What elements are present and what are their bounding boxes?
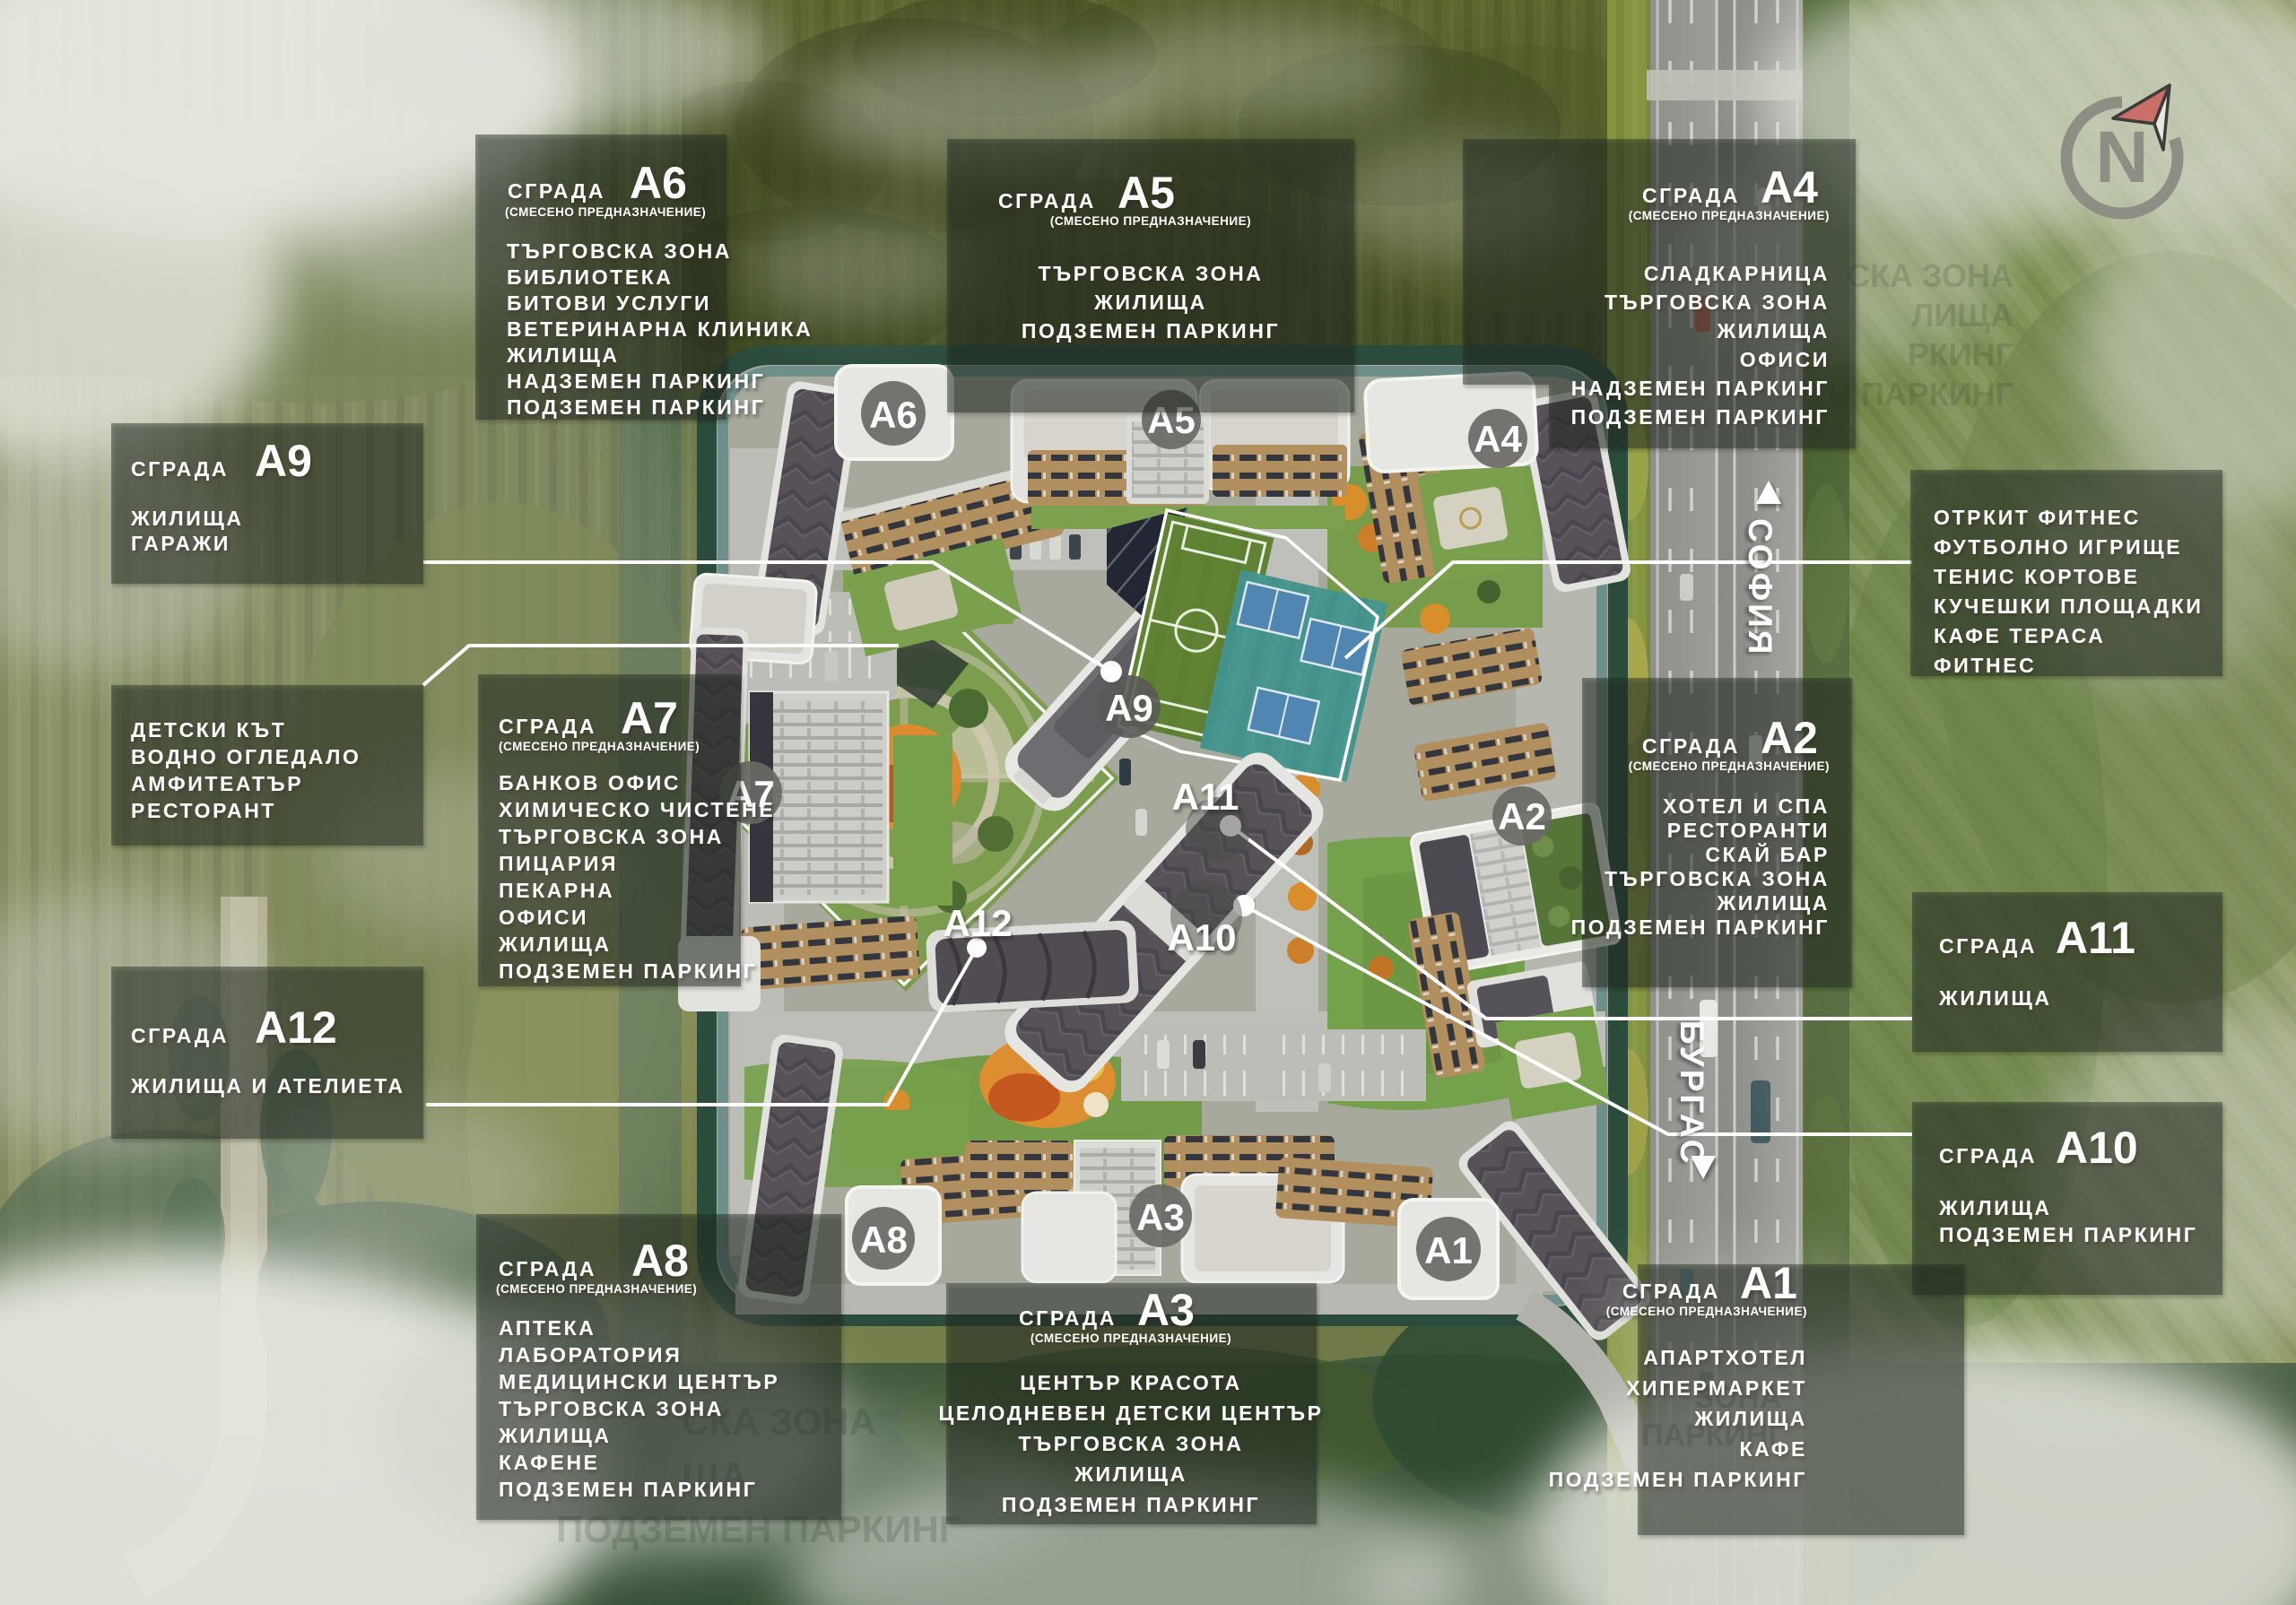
svg-text:СГРАДА: СГРАДА <box>1939 934 2037 958</box>
svg-text:ПОДЗЕМЕН ПАРКИНГ: ПОДЗЕМЕН ПАРКИНГ <box>1571 915 1830 939</box>
svg-text:(СМЕСЕНО ПРЕДНАЗНАЧЕНИЕ): (СМЕСЕНО ПРЕДНАЗНАЧЕНИЕ) <box>505 205 706 219</box>
svg-text:КАФЕНЕ: КАФЕНЕ <box>499 1451 600 1474</box>
svg-text:МЕДИЦИНСКИ ЦЕНТЪР: МЕДИЦИНСКИ ЦЕНТЪР <box>499 1370 779 1393</box>
svg-text:РКИНГ: РКИНГ <box>1908 336 2013 373</box>
svg-text:АМФИТЕАТЪР: АМФИТЕАТЪР <box>131 772 303 795</box>
svg-text:А8: А8 <box>859 1219 908 1261</box>
svg-text:СГРАДА: СГРАДА <box>998 189 1096 213</box>
svg-text:ОФИСИ: ОФИСИ <box>499 906 588 929</box>
svg-text:НАДЗЕМЕН ПАРКИНГ: НАДЗЕМЕН ПАРКИНГ <box>507 369 765 393</box>
svg-text:Н ПАРКИНГ: Н ПАРКИНГ <box>1829 376 2013 412</box>
svg-text:ПОДЗЕМЕН ПАРКИНГ: ПОДЗЕМЕН ПАРКИНГ <box>507 395 765 419</box>
svg-text:СКАЙ БАР: СКАЙ БАР <box>1705 842 1830 866</box>
svg-text:ЖИЛИЩА: ЖИЛИЩА <box>1074 1462 1187 1486</box>
svg-text:АПТЕКА: АПТЕКА <box>499 1316 596 1340</box>
svg-text:ТЪРГОВСКА ЗОНА: ТЪРГОВСКА ЗОНА <box>1018 1432 1243 1455</box>
svg-text:НАДЗЕМЕН ПАРКИНГ: НАДЗЕМЕН ПАРКИНГ <box>1571 377 1830 400</box>
svg-text:(СМЕСЕНО ПРЕДНАЗНАЧЕНИЕ): (СМЕСЕНО ПРЕДНАЗНАЧЕНИЕ) <box>1629 209 1830 222</box>
svg-text:N: N <box>2095 117 2148 198</box>
svg-text:ПОДЗЕМЕН ПАРКИНГ: ПОДЗЕМЕН ПАРКИНГ <box>499 1478 757 1501</box>
svg-text:ЛИЩА: ЛИЩА <box>1911 297 2013 334</box>
svg-text:СОФИЯ: СОФИЯ <box>1742 518 1779 656</box>
svg-text:ЖИЛИЩА: ЖИЛИЩА <box>1938 986 2052 1010</box>
svg-text:А5: А5 <box>1118 168 1175 218</box>
svg-text:ЖИЛИЩА: ЖИЛИЩА <box>1693 1407 1807 1430</box>
svg-text:А4: А4 <box>1761 162 1818 213</box>
svg-text:А9: А9 <box>255 436 312 486</box>
svg-text:А9: А9 <box>1105 687 1153 729</box>
svg-text:ПОДЗЕМЕН ПАРКИНГ: ПОДЗЕМЕН ПАРКИНГ <box>1002 1493 1260 1516</box>
svg-text:ТЪРГОВСКА ЗОНА: ТЪРГОВСКА ЗОНА <box>499 825 724 848</box>
svg-text:ТЪРГОВСКА ЗОНА: ТЪРГОВСКА ЗОНА <box>499 1397 724 1420</box>
svg-text:ТЪРГОВСКА ЗОНА: ТЪРГОВСКА ЗОНА <box>1605 291 1830 314</box>
svg-text:(СМЕСЕНО ПРЕДНАЗНАЧЕНИЕ): (СМЕСЕНО ПРЕДНАЗНАЧЕНИЕ) <box>1031 1332 1231 1345</box>
svg-text:ЖИЛИЩА И АТЕЛИЕТА: ЖИЛИЩА И АТЕЛИЕТА <box>130 1074 405 1097</box>
svg-text:А8: А8 <box>631 1236 689 1286</box>
svg-text:БИБЛИОТЕКА: БИБЛИОТЕКА <box>507 265 674 289</box>
svg-text:(СМЕСЕНО ПРЕДНАЗНАЧЕНИЕ): (СМЕСЕНО ПРЕДНАЗНАЧЕНИЕ) <box>499 740 700 753</box>
svg-text:А10: А10 <box>2056 1123 2138 1173</box>
svg-text:КАФЕ ТЕРАСА: КАФЕ ТЕРАСА <box>1934 624 2105 647</box>
svg-text:ЖИЛИЩА: ЖИЛИЩА <box>1938 1196 2052 1219</box>
svg-text:(СМЕСЕНО ПРЕДНАЗНАЧЕНИЕ): (СМЕСЕНО ПРЕДНАЗНАЧЕНИЕ) <box>496 1282 697 1296</box>
svg-text:ГАРАЖИ: ГАРАЖИ <box>131 532 230 555</box>
svg-text:СГРАДА: СГРАДА <box>1622 1280 1720 1303</box>
svg-text:СЛАДКАРНИЦА: СЛАДКАРНИЦА <box>1644 262 1830 285</box>
svg-text:А2: А2 <box>1761 713 1818 763</box>
svg-text:ФИТНЕС: ФИТНЕС <box>1934 654 2036 677</box>
svg-text:ЖИЛИЩА: ЖИЛИЩА <box>1716 319 1830 343</box>
svg-text:ПОДЗЕМЕН ПАРКИНГ: ПОДЗЕМЕН ПАРКИНГ <box>499 959 757 983</box>
svg-text:А6: А6 <box>630 158 687 208</box>
svg-text:(СМЕСЕНО ПРЕДНАЗНАЧЕНИЕ): (СМЕСЕНО ПРЕДНАЗНАЧЕНИЕ) <box>1629 759 1830 773</box>
svg-text:РЕСТОРАНТ: РЕСТОРАНТ <box>131 799 276 822</box>
svg-text:ТЪРГОВСКА ЗОНА: ТЪРГОВСКА ЗОНА <box>1038 262 1263 285</box>
svg-text:СГРАДА: СГРАДА <box>499 1257 596 1280</box>
svg-text:ПИЦАРИЯ: ПИЦАРИЯ <box>499 852 618 875</box>
svg-text:ЖИЛИЩА: ЖИЛИЩА <box>506 343 620 367</box>
svg-text:ПЕКАРНА: ПЕКАРНА <box>499 879 614 902</box>
svg-text:(СМЕСЕНО ПРЕДНАЗНАЧЕНИЕ): (СМЕСЕНО ПРЕДНАЗНАЧЕНИЕ) <box>1606 1305 1807 1318</box>
svg-text:СГРАДА: СГРАДА <box>131 1024 229 1047</box>
svg-text:А4: А4 <box>1474 418 1522 460</box>
svg-text:ВЕТЕРИНАРНА КЛИНИКА: ВЕТЕРИНАРНА КЛИНИКА <box>507 317 813 341</box>
svg-text:СГРАДА: СГРАДА <box>1642 184 1740 207</box>
svg-text:А1: А1 <box>1740 1258 1797 1308</box>
svg-text:ЦЕЛОДНЕВЕН ДЕТСКИ ЦЕНТЪР: ЦЕЛОДНЕВЕН ДЕТСКИ ЦЕНТЪР <box>938 1401 1323 1425</box>
svg-text:ЖИЛИЩА: ЖИЛИЩА <box>1093 291 1207 314</box>
svg-text:А11: А11 <box>2056 913 2135 963</box>
svg-text:ДЕТСКИ КЪТ: ДЕТСКИ КЪТ <box>131 718 286 742</box>
svg-text:ЦЕНТЪР КРАСОТА: ЦЕНТЪР КРАСОТА <box>1020 1371 1241 1394</box>
svg-text:КАФЕ: КАФЕ <box>1740 1437 1807 1461</box>
svg-text:ПОДЗЕМЕН ПАРКИНГ: ПОДЗЕМЕН ПАРКИНГ <box>1022 319 1280 343</box>
svg-text:АПАРТХОТЕЛ: АПАРТХОТЕЛ <box>1643 1346 1807 1369</box>
svg-text:БУРГАС: БУРГАС <box>1674 1020 1710 1167</box>
svg-text:СКА ЗОНА: СКА ЗОНА <box>1847 257 2013 294</box>
svg-text:А3: А3 <box>1136 1196 1185 1238</box>
svg-text:А2: А2 <box>1498 795 1546 837</box>
svg-text:ЖИЛИЩА: ЖИЛИЩА <box>130 507 244 530</box>
svg-text:ЖИЛИЩА: ЖИЛИЩА <box>498 933 612 956</box>
svg-text:ОФИСИ: ОФИСИ <box>1740 348 1830 371</box>
svg-text:СГРАДА: СГРАДА <box>499 715 596 738</box>
svg-text:СГРАДА: СГРАДА <box>131 457 229 481</box>
svg-text:ТЪРГОВСКА ЗОНА: ТЪРГОВСКА ЗОНА <box>507 239 732 263</box>
svg-text:ПОДЗЕМЕН ПАРКИНГ: ПОДЗЕМЕН ПАРКИНГ <box>1939 1223 2197 1246</box>
svg-text:(СМЕСЕНО ПРЕДНАЗНАЧЕНИЕ): (СМЕСЕНО ПРЕДНАЗНАЧЕНИЕ) <box>1050 214 1251 228</box>
svg-text:ХИМИЧЕСКО ЧИСТЕНЕ: ХИМИЧЕСКО ЧИСТЕНЕ <box>499 798 775 821</box>
svg-text:А7: А7 <box>621 693 678 743</box>
svg-text:РЕСТОРАНТИ: РЕСТОРАНТИ <box>1667 819 1830 842</box>
svg-text:ЛАБОРАТОРИЯ: ЛАБОРАТОРИЯ <box>499 1343 682 1366</box>
svg-text:ЖИЛИЩА: ЖИЛИЩА <box>498 1424 612 1447</box>
svg-text:СГРАДА: СГРАДА <box>1939 1144 2037 1167</box>
svg-text:ЖИЛИЩА: ЖИЛИЩА <box>1716 891 1830 915</box>
svg-text:СГРАДА: СГРАДА <box>1019 1306 1117 1330</box>
svg-text:ТЕНИС КОРТОВЕ: ТЕНИС КОРТОВЕ <box>1934 565 2140 588</box>
svg-text:ФУТБОЛНО ИГРИЩЕ: ФУТБОЛНО ИГРИЩЕ <box>1934 535 2182 559</box>
svg-text:ПОДЗЕМЕН ПАРКИНГ: ПОДЗЕМЕН ПАРКИНГ <box>1571 405 1830 429</box>
svg-text:А6: А6 <box>869 394 918 436</box>
svg-text:А11: А11 <box>1172 776 1239 818</box>
svg-text:ТЪРГОВСКА ЗОНА: ТЪРГОВСКА ЗОНА <box>1605 867 1830 890</box>
svg-text:А12: А12 <box>943 902 1012 944</box>
svg-text:ХОТЕЛ И СПА: ХОТЕЛ И СПА <box>1663 794 1830 818</box>
svg-text:ПОДЗЕМЕН ПАРКИНГ: ПОДЗЕМЕН ПАРКИНГ <box>1549 1468 1807 1491</box>
svg-text:А1: А1 <box>1424 1229 1473 1271</box>
svg-text:БАНКОВ ОФИС: БАНКОВ ОФИС <box>499 771 681 794</box>
svg-text:КУЧЕШКИ ПЛОЩАДКИ: КУЧЕШКИ ПЛОЩАДКИ <box>1934 594 2204 618</box>
svg-text:А10: А10 <box>1167 916 1236 959</box>
svg-text:ВОДНО ОГЛЕДАЛО: ВОДНО ОГЛЕДАЛО <box>131 745 361 768</box>
svg-text:А12: А12 <box>255 1002 337 1053</box>
svg-text:БИТОВИ УСЛУГИ: БИТОВИ УСЛУГИ <box>507 291 711 315</box>
svg-text:СГРАДА: СГРАДА <box>508 179 605 203</box>
svg-text:ОТРКИТ ФИТНЕС: ОТРКИТ ФИТНЕС <box>1934 506 2141 529</box>
svg-text:А3: А3 <box>1137 1285 1195 1335</box>
svg-text:ХИПЕРМАРКЕТ: ХИПЕРМАРКЕТ <box>1626 1376 1807 1400</box>
svg-text:СГРАДА: СГРАДА <box>1642 734 1740 758</box>
